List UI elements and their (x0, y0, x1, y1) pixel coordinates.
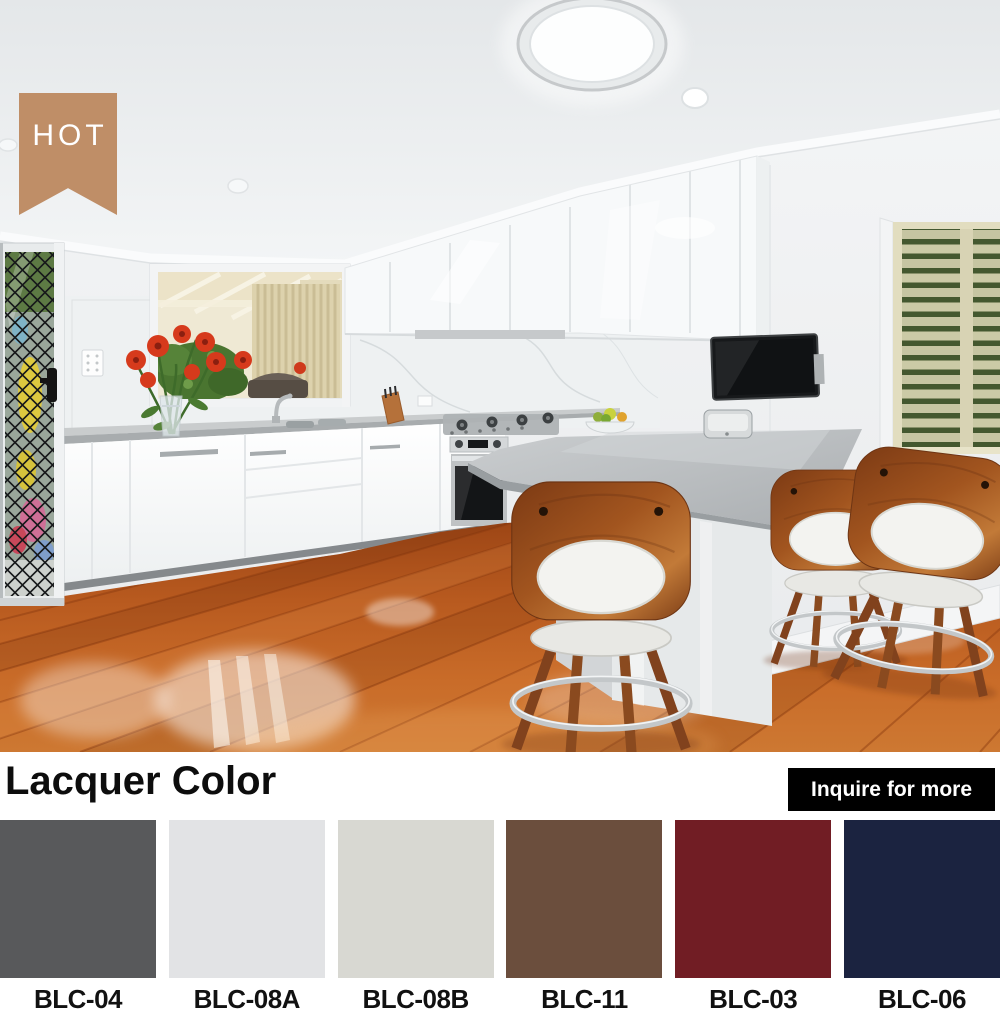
tv (711, 334, 825, 400)
swatch-code: BLC-08B (338, 984, 494, 1015)
swatch-blc-04: BLC-04 (0, 820, 156, 1015)
swatch-color (338, 820, 494, 978)
swatch-code: BLC-08A (169, 984, 325, 1015)
kitchen-photo (0, 0, 1000, 752)
swatch-blc-11: BLC-11 (506, 820, 662, 1015)
swatch-color (0, 820, 156, 978)
light-switch[interactable] (82, 350, 103, 376)
color-swatch-row: BLC-04 BLC-08A BLC-08B BLC-11 BLC-03 BLC… (0, 820, 1000, 1015)
gas-cooktop (443, 413, 559, 436)
product-page: HOT Lacquer Color Inquire for more BLC-0… (0, 0, 1000, 1017)
kitchen-photo-illustration (0, 0, 1000, 752)
hot-badge-label: HOT (32, 121, 107, 151)
door-handle (47, 368, 57, 402)
lacquer-color-section: Lacquer Color Inquire for more BLC-04 BL… (0, 752, 1000, 1017)
power-outlet (418, 396, 432, 406)
swatch-color (169, 820, 325, 978)
speaker (704, 410, 752, 438)
swatch-code: BLC-04 (0, 984, 156, 1015)
swatch-color (675, 820, 831, 978)
security-door (0, 243, 64, 606)
swatch-color (844, 820, 1000, 978)
inquire-for-more-button[interactable]: Inquire for more (788, 768, 995, 811)
rangehood (415, 330, 565, 339)
section-title: Lacquer Color (5, 761, 276, 801)
swatch-code: BLC-11 (506, 984, 662, 1015)
swatch-blc-03: BLC-03 (675, 820, 831, 1015)
swatch-code: BLC-03 (675, 984, 831, 1015)
right-window-shutters (880, 218, 1000, 462)
swatch-blc-06: BLC-06 (844, 820, 1000, 1015)
swatch-color (506, 820, 662, 978)
swatch-blc-08b: BLC-08B (338, 820, 494, 1015)
swatch-blc-08a: BLC-08A (169, 820, 325, 1015)
swatch-code: BLC-06 (844, 984, 1000, 1015)
